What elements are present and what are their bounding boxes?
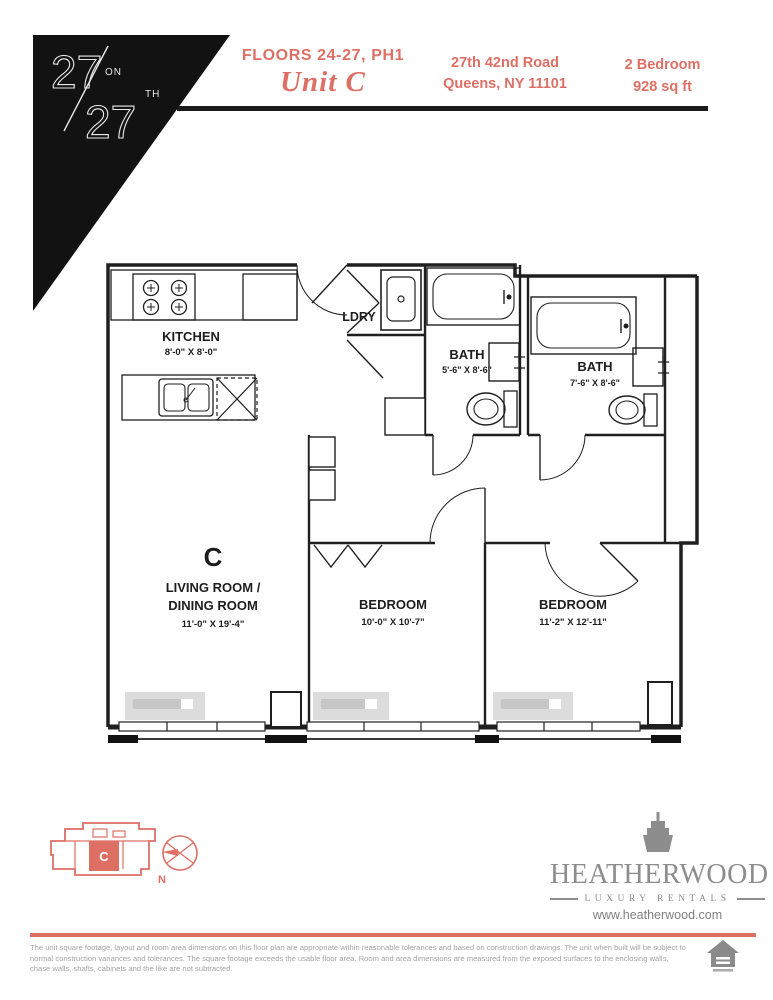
bedroom2-dims: 11'-2" X 12'-11": [539, 617, 606, 628]
laundry-label: LDRY: [342, 310, 376, 324]
tagline-rule-left: [550, 898, 578, 900]
brand-block: HEATHERWOOD LUXURY RENTALS: [550, 812, 765, 904]
bath2-toilet-icon: [609, 394, 657, 426]
bedroom1-closet-bifold: [314, 545, 382, 567]
bedroom1-label: BEDROOM: [359, 597, 427, 612]
bath2-sink-icon: [633, 348, 669, 386]
keyplan: C: [45, 817, 161, 883]
disclaimer-text: The unit square footage, layout and room…: [30, 943, 688, 975]
bathtub2-icon: [531, 297, 636, 354]
address-street: 27th 42nd Road: [440, 53, 570, 74]
living-dims: 11'-0" X 19'-4": [182, 619, 245, 630]
bathtub1-icon: [427, 268, 520, 325]
window-sill: [108, 735, 681, 743]
equal-housing-icon: [707, 940, 739, 976]
bath2-label: BATH: [577, 359, 612, 374]
logo-sub-bottom: TH: [145, 89, 160, 100]
tagline-text: LUXURY RENTALS: [584, 894, 730, 904]
kitchen-label: KITCHEN: [162, 329, 220, 344]
windows: [119, 722, 640, 731]
washer-icon: [381, 270, 421, 330]
room-labels: KITCHEN 8'-0" X 8'-0" LDRY BATH 5'-6" X …: [162, 310, 620, 630]
bath2-dims: 7'-6" X 8'-6": [570, 378, 620, 388]
unit-bedrooms: 2 Bedroom: [605, 54, 720, 76]
bath1-dims: 5'-6" X 8'-6": [442, 365, 492, 375]
bath1-sink-icon: [489, 343, 525, 381]
hall-closets: [309, 398, 425, 500]
floors-title: FLOORS 24-27, PH1: [208, 47, 438, 65]
brand-building-icon: [636, 812, 680, 852]
compass-icon: N: [156, 831, 204, 887]
logo-number-bottom: 27: [85, 96, 136, 148]
hall-closet-door: [347, 340, 383, 378]
bedroom1-dims: 10'-0" X 10'-7": [361, 617, 424, 628]
kitchen-counter: [111, 270, 297, 420]
compass-north-label: N: [158, 874, 166, 886]
kitchen-sink-icon: [159, 379, 213, 416]
address-city: Queens, NY 11101: [440, 74, 570, 95]
address-block: 27th 42nd Road Queens, NY 11101: [440, 53, 570, 95]
logo-sub-top: ON: [105, 67, 122, 78]
entry-door: [297, 265, 347, 315]
bath-doors: [433, 435, 585, 480]
logo-number-top: 27: [51, 46, 102, 98]
bath1-toilet-icon: [467, 391, 517, 427]
tagline-rule-right: [737, 898, 765, 900]
brand-name: HEATHERWOOD: [550, 859, 765, 891]
baseboard-heaters: [125, 692, 573, 720]
header-rule: [177, 106, 708, 111]
stove-icon: [133, 274, 195, 320]
keyplan-unit-letter: C: [99, 849, 109, 864]
kitchen-dims: 8'-0" X 8'-0": [165, 347, 218, 358]
interior-walls: [309, 265, 697, 727]
unit-sqft: 928 sq ft: [605, 76, 720, 98]
unit-info-block: 2 Bedroom 928 sq ft: [605, 54, 720, 98]
brand-tagline: LUXURY RENTALS: [550, 894, 765, 904]
unit-title: Unit C: [208, 66, 438, 99]
living-label-2: DINING ROOM: [168, 598, 258, 613]
floors-title-block: FLOORS 24-27, PH1 Unit C: [208, 47, 438, 99]
dishwasher-icon: [217, 378, 257, 420]
bedroom2-label: BEDROOM: [539, 597, 607, 612]
bath1-label: BATH: [449, 347, 484, 362]
website-link[interactable]: www.heatherwood.com: [550, 908, 765, 922]
footer-divider: [30, 933, 756, 937]
floorplan-page: 27 ON 27 TH FLOORS 24-27, PH1 Unit C 27t…: [0, 0, 773, 1000]
floorplan-drawing: KITCHEN 8'-0" X 8'-0" LDRY BATH 5'-6" X …: [95, 240, 715, 760]
living-label-1: LIVING ROOM /: [166, 580, 261, 595]
unit-letter-label: C: [204, 542, 223, 572]
